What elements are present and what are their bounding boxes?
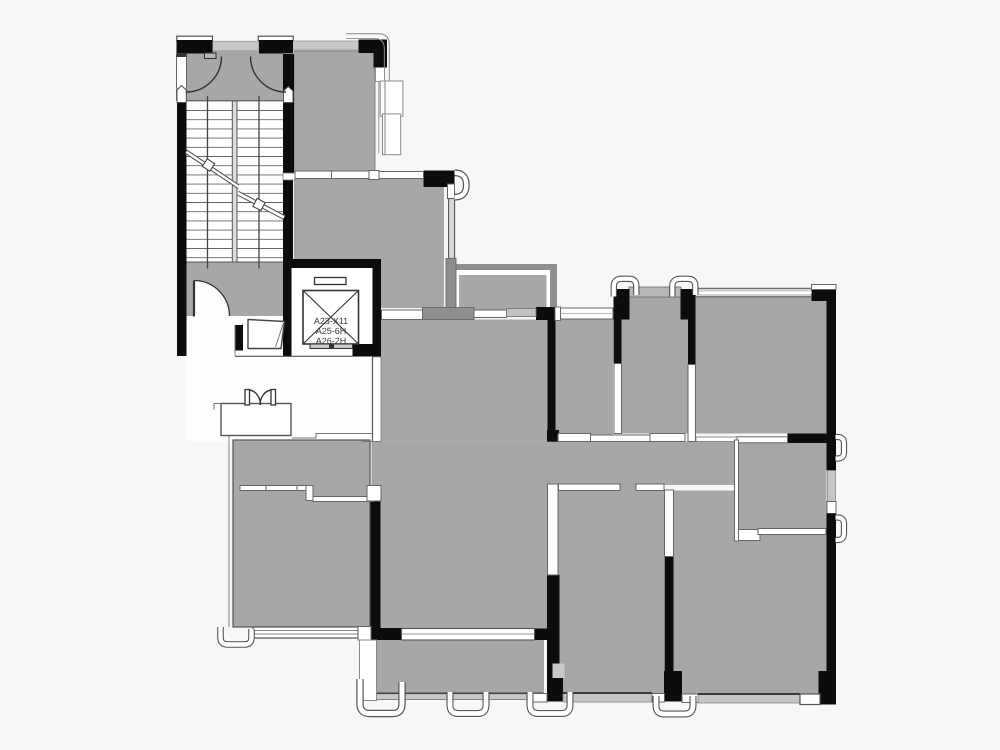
svg-text:A26-2H: A26-2H xyxy=(316,336,347,346)
svg-text:A25-6H: A25-6H xyxy=(316,326,347,336)
svg-text:A23-X11: A23-X11 xyxy=(314,316,348,326)
